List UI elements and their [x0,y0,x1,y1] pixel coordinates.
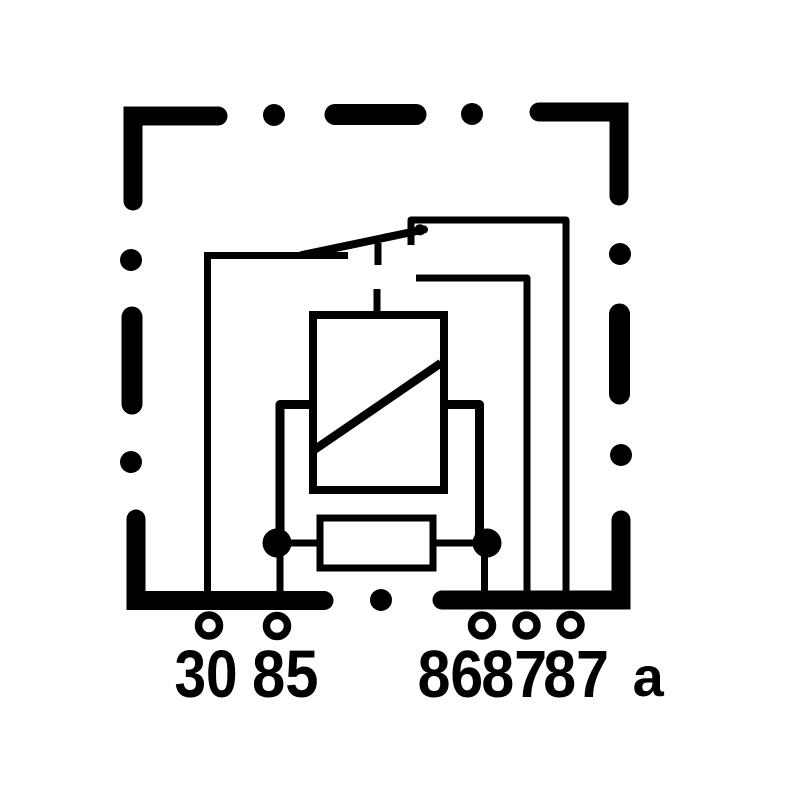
svg-text:30: 30 [175,638,238,713]
svg-text:87: 87 [481,638,547,712]
svg-text:87: 87 [543,638,609,712]
svg-text:86: 86 [418,638,484,712]
svg-text:a: a [633,645,665,708]
svg-text:85: 85 [252,637,318,712]
